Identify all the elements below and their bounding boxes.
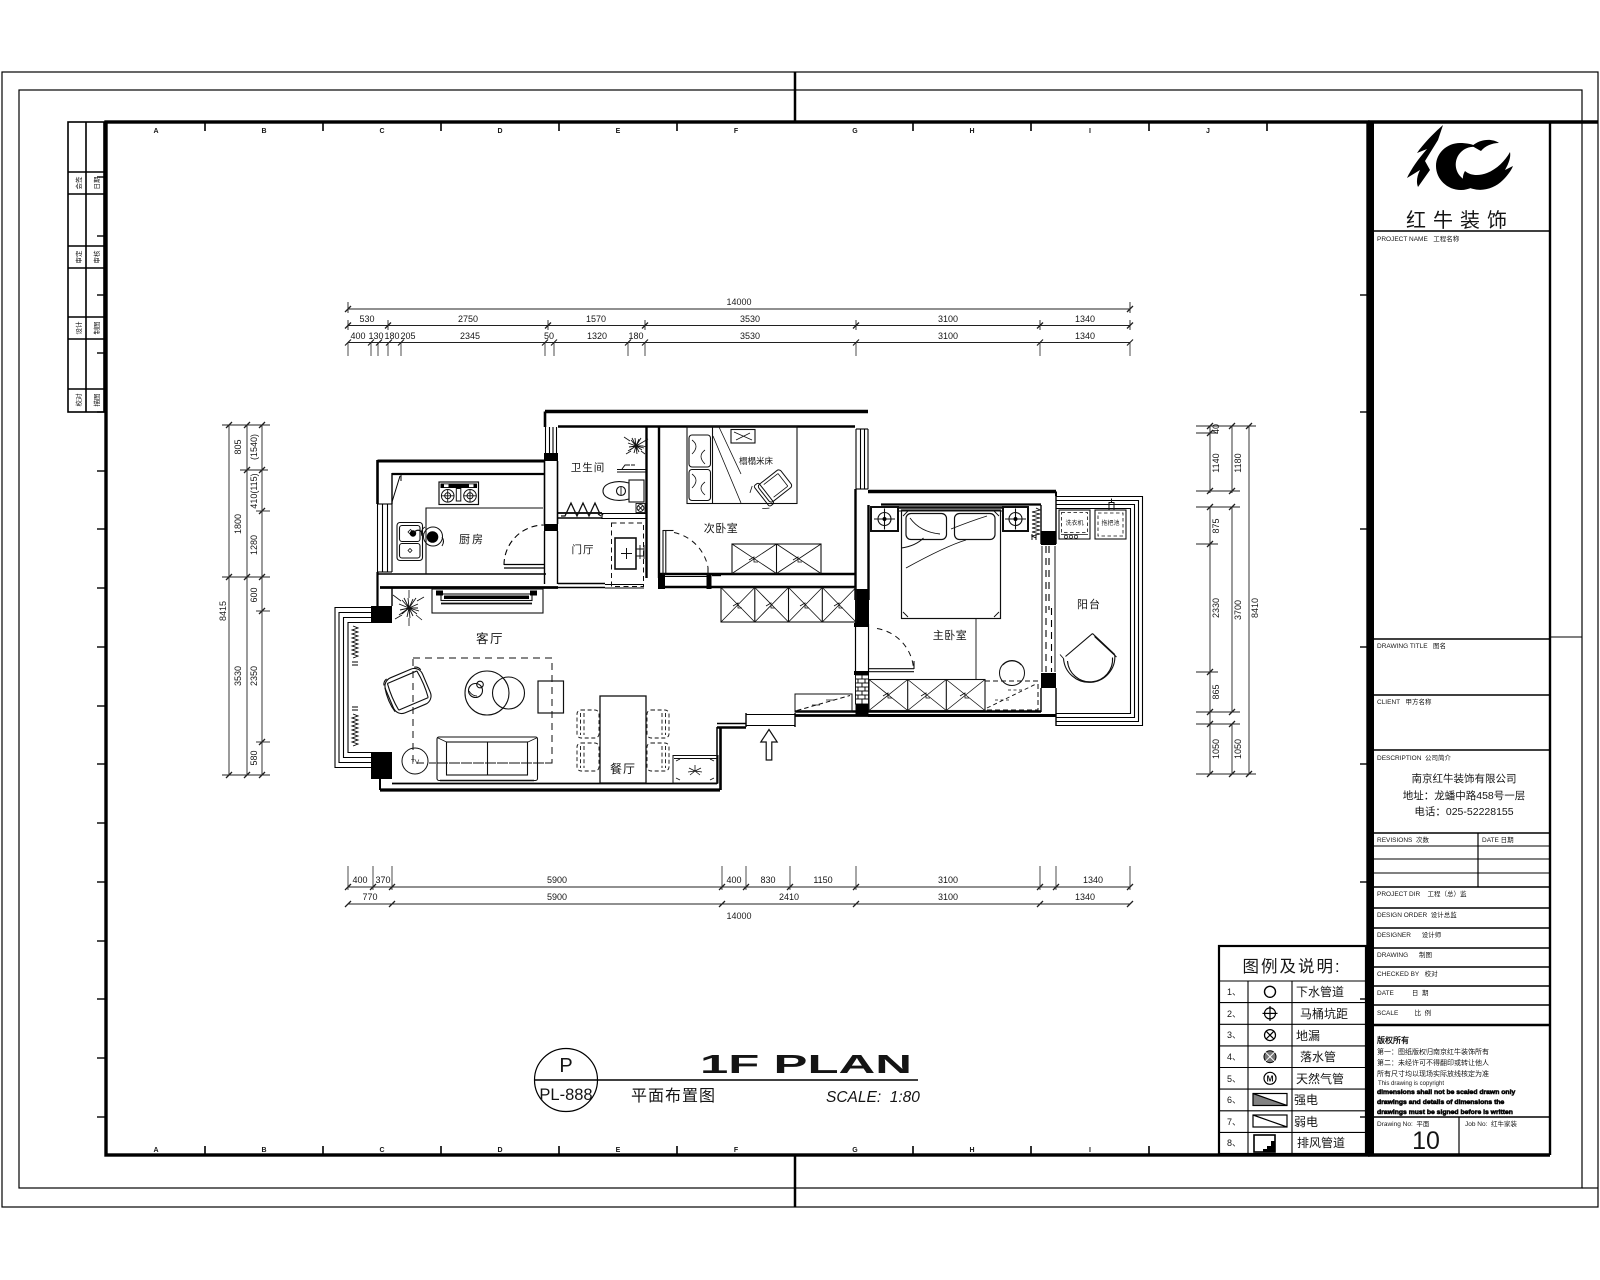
svg-text:830: 830 bbox=[760, 875, 775, 885]
svg-text:7、: 7、 bbox=[1227, 1117, 1241, 1127]
svg-text:E: E bbox=[616, 1147, 621, 1154]
svg-text:PROJECT NAME 工程名称: PROJECT NAME 工程名称 bbox=[1377, 234, 1460, 243]
svg-text:红牛装饰: 红牛装饰 bbox=[1406, 209, 1514, 232]
svg-text:CLIENT 甲方名称: CLIENT 甲方名称 bbox=[1377, 697, 1432, 706]
svg-text:餐厅: 餐厅 bbox=[610, 761, 636, 776]
svg-text:次卧室: 次卧室 bbox=[704, 521, 739, 535]
svg-text:1150: 1150 bbox=[813, 875, 832, 885]
svg-text:DESIGNER 设计师: DESIGNER 设计师 bbox=[1377, 930, 1442, 939]
svg-text:1340: 1340 bbox=[1075, 314, 1095, 324]
svg-text:8415: 8415 bbox=[218, 601, 228, 621]
svg-text:地址：龙蟠中路458号一层: 地址：龙蟠中路458号一层 bbox=[1403, 789, 1526, 802]
svg-text:1340: 1340 bbox=[1075, 331, 1095, 341]
svg-text:DRAWING TITLE 图名: DRAWING TITLE 图名 bbox=[1377, 641, 1446, 650]
svg-text:图例及说明:: 图例及说明: bbox=[1242, 957, 1341, 976]
svg-text:榻榻米床: 榻榻米床 bbox=[739, 456, 774, 466]
svg-text:875: 875 bbox=[1211, 518, 1221, 533]
svg-text:400: 400 bbox=[350, 331, 365, 341]
svg-text:5、: 5、 bbox=[1227, 1074, 1241, 1084]
svg-text:dimensions shall not be scaled: dimensions shall not be scaled drawn onl… bbox=[1377, 1089, 1515, 1096]
svg-text:排风管道: 排风管道 bbox=[1297, 1135, 1345, 1150]
svg-text:40: 40 bbox=[1211, 424, 1221, 434]
svg-text:2750: 2750 bbox=[458, 314, 478, 324]
svg-text:1800: 1800 bbox=[233, 514, 243, 534]
svg-text:370: 370 bbox=[375, 875, 390, 885]
svg-text:H: H bbox=[969, 128, 974, 135]
svg-text:马桶坑距: 马桶坑距 bbox=[1300, 1006, 1348, 1021]
svg-text:1050: 1050 bbox=[1233, 739, 1243, 759]
svg-text:(1540): (1540) bbox=[249, 434, 259, 460]
svg-text:1320: 1320 bbox=[587, 331, 607, 341]
svg-text:6、: 6、 bbox=[1227, 1095, 1241, 1105]
svg-text:F: F bbox=[734, 128, 739, 135]
svg-text:drawings must be signed before: drawings must be signed before is writte… bbox=[1377, 1109, 1513, 1116]
svg-text:805: 805 bbox=[233, 439, 243, 454]
svg-text:A: A bbox=[153, 128, 158, 135]
svg-text:CHECKED BY 校对: CHECKED BY 校对 bbox=[1377, 969, 1438, 978]
svg-text:C: C bbox=[379, 128, 384, 135]
svg-text:1180: 1180 bbox=[1233, 453, 1243, 472]
svg-text:M: M bbox=[1266, 1074, 1273, 1084]
svg-text:Job No: 红牛家装: Job No: 红牛家装 bbox=[1465, 1119, 1518, 1128]
svg-text:180: 180 bbox=[384, 331, 399, 341]
svg-text:580: 580 bbox=[249, 750, 259, 765]
svg-text:SCALE 比 例: SCALE 比 例 bbox=[1377, 1008, 1431, 1017]
svg-text:天然气管: 天然气管 bbox=[1296, 1071, 1344, 1086]
svg-text:2410: 2410 bbox=[779, 892, 799, 902]
svg-text:I: I bbox=[1089, 1147, 1091, 1154]
svg-text:SCALE: 1:80: SCALE: 1:80 bbox=[826, 1089, 920, 1106]
svg-text:drawings and details of dimens: drawings and details of dimensions the bbox=[1377, 1099, 1504, 1106]
svg-text:2350: 2350 bbox=[249, 666, 259, 686]
svg-text:400: 400 bbox=[726, 875, 741, 885]
svg-text:审核: 审核 bbox=[92, 250, 101, 264]
svg-text:C: C bbox=[379, 1147, 384, 1154]
svg-text:第二：未经许可不得翻印或转让他人: 第二：未经许可不得翻印或转让他人 bbox=[1377, 1058, 1489, 1067]
svg-text:J: J bbox=[1206, 128, 1210, 135]
svg-text:1050: 1050 bbox=[1211, 739, 1221, 759]
svg-text:10: 10 bbox=[1412, 1127, 1440, 1155]
svg-text:G: G bbox=[852, 128, 858, 135]
svg-text:REVISIONS 次数: REVISIONS 次数 bbox=[1377, 835, 1430, 844]
svg-text:50: 50 bbox=[544, 331, 554, 341]
svg-text:弱电: 弱电 bbox=[1294, 1115, 1318, 1129]
svg-text:3530: 3530 bbox=[233, 666, 243, 686]
svg-text:400: 400 bbox=[352, 875, 367, 885]
svg-text:版权所有: 版权所有 bbox=[1376, 1035, 1409, 1045]
svg-text:强电: 强电 bbox=[1294, 1093, 1318, 1107]
svg-text:3100: 3100 bbox=[938, 331, 958, 341]
svg-text:B: B bbox=[261, 1147, 266, 1154]
svg-text:A: A bbox=[153, 1147, 158, 1154]
svg-text:5900: 5900 bbox=[547, 892, 567, 902]
svg-text:PROJECT DIR 工程（总）监: PROJECT DIR 工程（总）监 bbox=[1377, 889, 1467, 898]
svg-text:第一：图纸版权归南京红牛装饰所有: 第一：图纸版权归南京红牛装饰所有 bbox=[1377, 1047, 1489, 1056]
svg-text:主卧室: 主卧室 bbox=[933, 628, 968, 642]
svg-text:14000: 14000 bbox=[726, 297, 751, 307]
svg-text:600: 600 bbox=[249, 587, 259, 602]
svg-text:P: P bbox=[559, 1055, 572, 1077]
svg-text:1340: 1340 bbox=[1083, 875, 1103, 885]
svg-text:拖把池: 拖把池 bbox=[1101, 519, 1119, 527]
svg-text:PL-888: PL-888 bbox=[539, 1086, 592, 1104]
svg-text:下水管道: 下水管道 bbox=[1296, 984, 1344, 999]
svg-text:所有尺寸均以现场实际放线核定为准: 所有尺寸均以现场实际放线核定为准 bbox=[1377, 1069, 1489, 1078]
svg-text:DATE 日期: DATE 日期 bbox=[1482, 836, 1514, 844]
svg-text:描图: 描图 bbox=[92, 394, 101, 407]
svg-text:卫生间: 卫生间 bbox=[571, 461, 606, 474]
svg-text:1140: 1140 bbox=[1211, 453, 1221, 472]
svg-text:1、: 1、 bbox=[1227, 987, 1241, 997]
svg-text:G: G bbox=[852, 1147, 858, 1154]
svg-text:D: D bbox=[497, 1147, 502, 1154]
svg-text:130: 130 bbox=[368, 331, 383, 341]
svg-text:1F PLAN: 1F PLAN bbox=[700, 1049, 912, 1079]
svg-text:电话：025-52228155: 电话：025-52228155 bbox=[1414, 805, 1513, 818]
svg-text:2330: 2330 bbox=[1211, 598, 1221, 618]
svg-text:This drawing is copyright: This drawing is copyright bbox=[1378, 1081, 1444, 1087]
svg-text:205: 205 bbox=[400, 331, 415, 341]
svg-text:3100: 3100 bbox=[938, 892, 958, 902]
svg-text:3、: 3、 bbox=[1227, 1030, 1241, 1040]
svg-text:校对: 校对 bbox=[74, 393, 83, 407]
svg-text:14000: 14000 bbox=[726, 911, 751, 921]
svg-text:洗衣机: 洗衣机 bbox=[1065, 519, 1083, 527]
svg-text:4、: 4、 bbox=[1227, 1052, 1241, 1062]
svg-text:180: 180 bbox=[628, 331, 643, 341]
svg-text:I: I bbox=[1089, 128, 1091, 135]
svg-text:1280: 1280 bbox=[249, 535, 259, 555]
svg-text:D: D bbox=[497, 128, 502, 135]
svg-text:设计: 设计 bbox=[74, 321, 83, 335]
svg-text:制图: 制图 bbox=[92, 322, 101, 335]
svg-text:客厅: 客厅 bbox=[476, 631, 504, 646]
svg-text:日期: 日期 bbox=[93, 176, 101, 190]
svg-text:DATE 日 期: DATE 日 期 bbox=[1377, 989, 1429, 997]
svg-text:H: H bbox=[969, 1147, 974, 1154]
svg-text:门厅: 门厅 bbox=[572, 543, 595, 556]
svg-text:DESIGN ORDER 设计总监: DESIGN ORDER 设计总监 bbox=[1377, 910, 1457, 919]
svg-text:3100: 3100 bbox=[938, 875, 958, 885]
svg-text:2345: 2345 bbox=[460, 331, 480, 341]
svg-text:865: 865 bbox=[1211, 684, 1221, 699]
svg-text:DRAWING 制图: DRAWING 制图 bbox=[1377, 950, 1432, 959]
svg-text:厨房: 厨房 bbox=[459, 533, 485, 546]
svg-text:410(115): 410(115) bbox=[249, 473, 259, 508]
svg-text:F: F bbox=[734, 1147, 739, 1154]
svg-text:530: 530 bbox=[359, 314, 374, 324]
svg-text:2、: 2、 bbox=[1227, 1009, 1241, 1019]
svg-text:落水管: 落水管 bbox=[1300, 1049, 1336, 1064]
svg-text:8410: 8410 bbox=[1250, 598, 1260, 618]
svg-text:南京红牛装饰有限公司: 南京红牛装饰有限公司 bbox=[1412, 772, 1517, 785]
svg-text:阳台: 阳台 bbox=[1077, 597, 1101, 611]
svg-text:3100: 3100 bbox=[938, 314, 958, 324]
svg-text:5900: 5900 bbox=[547, 875, 567, 885]
svg-text:地漏: 地漏 bbox=[1296, 1029, 1320, 1043]
svg-text:E: E bbox=[616, 128, 621, 135]
svg-text:3530: 3530 bbox=[740, 314, 760, 324]
svg-text:TV: TV bbox=[411, 759, 420, 766]
svg-text:3530: 3530 bbox=[740, 331, 760, 341]
svg-text:1570: 1570 bbox=[586, 314, 606, 324]
svg-text:8、: 8、 bbox=[1227, 1138, 1241, 1148]
svg-text:B: B bbox=[261, 128, 266, 135]
svg-text:审定: 审定 bbox=[74, 250, 83, 264]
svg-text:平面布置图: 平面布置图 bbox=[631, 1087, 716, 1105]
svg-text:3700: 3700 bbox=[1233, 600, 1243, 620]
svg-text:DESCRIPTION 公司简介: DESCRIPTION 公司简介 bbox=[1377, 753, 1452, 762]
svg-text:770: 770 bbox=[362, 892, 377, 902]
svg-text:会签: 会签 bbox=[74, 176, 83, 190]
svg-text:1340: 1340 bbox=[1075, 892, 1095, 902]
